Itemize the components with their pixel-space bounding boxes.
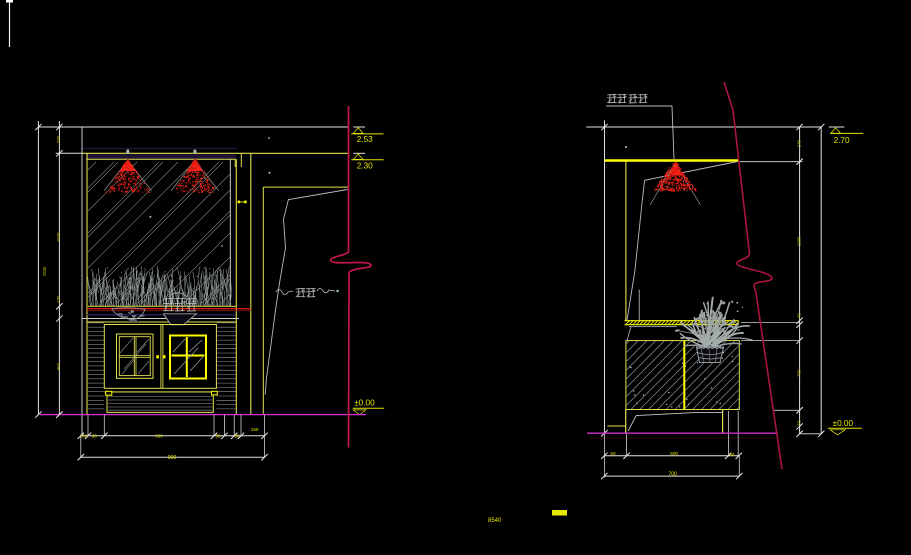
svg-text:240: 240 [796,139,801,147]
svg-text:±0.00: ±0.00 [354,399,375,408]
svg-text:50: 50 [235,434,241,439]
svg-text:960: 960 [56,362,61,370]
svg-text:600: 600 [155,434,163,439]
svg-text:700: 700 [796,369,801,377]
svg-text:±0.00: ±0.00 [833,419,854,428]
svg-text:600: 600 [670,451,678,456]
svg-text:900: 900 [168,455,177,461]
svg-text:1090: 1090 [796,236,801,246]
svg-text:60: 60 [92,434,98,439]
svg-text:50: 50 [729,452,735,457]
svg-text:1530: 1530 [56,232,61,242]
svg-text:150: 150 [251,427,259,432]
svg-text:120: 120 [56,295,61,303]
svg-text:230: 230 [56,135,61,143]
svg-text:2.30: 2.30 [357,162,373,171]
svg-text:50: 50 [610,451,616,456]
svg-text:50: 50 [216,434,222,439]
svg-text:2530: 2530 [42,266,47,276]
svg-text:40: 40 [796,313,801,318]
svg-text:2.70: 2.70 [834,136,850,145]
svg-text:700: 700 [669,471,678,477]
svg-text:2.53: 2.53 [357,135,373,144]
svg-text:8540: 8540 [488,518,502,524]
svg-text:50: 50 [796,420,801,425]
